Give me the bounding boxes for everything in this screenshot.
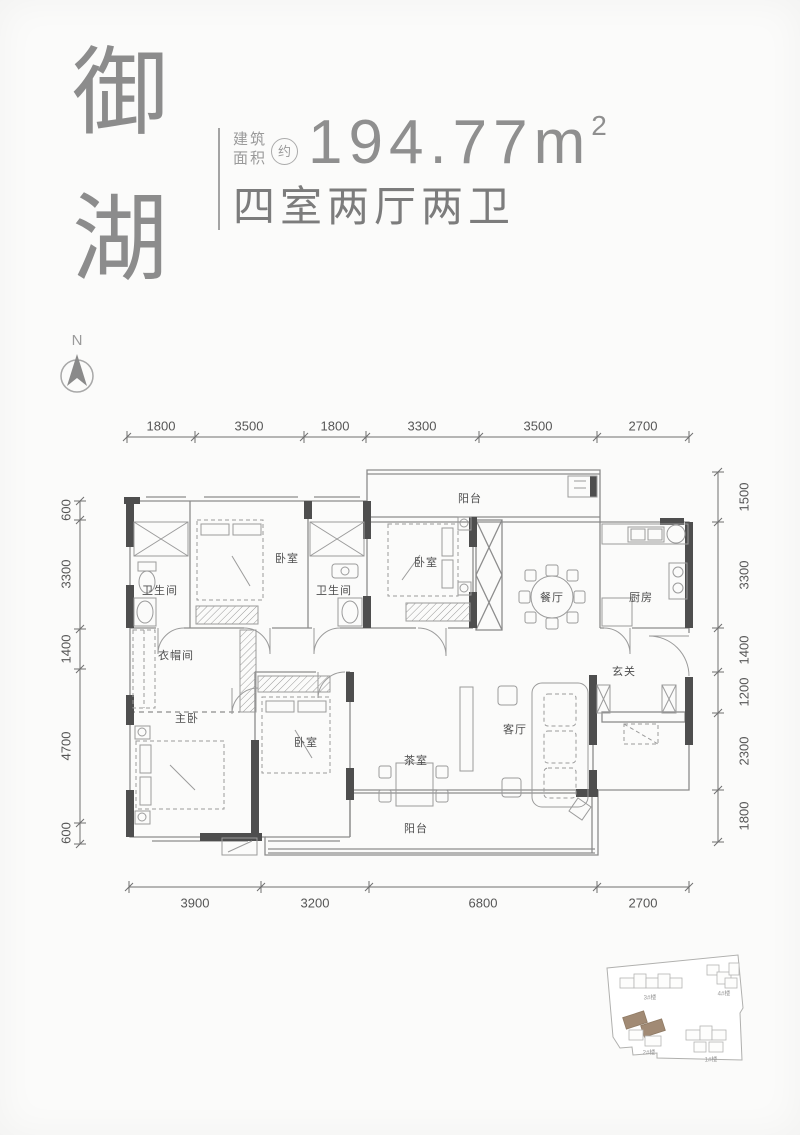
foyer-columns-icon xyxy=(597,685,676,713)
dim-left-1: 3300 xyxy=(59,560,74,589)
dim-top-3: 3300 xyxy=(408,419,437,434)
room-label-cloakroom: 衣帽间 xyxy=(158,647,194,663)
dim-top-4: 3500 xyxy=(524,419,553,434)
sofa-icon xyxy=(498,683,591,820)
foyer-box-icon xyxy=(624,724,658,744)
room-label-bathroom-2: 卫生间 xyxy=(316,582,352,598)
shower-2-icon xyxy=(310,522,364,556)
dim-left-2: 1400 xyxy=(59,635,74,664)
room-label-bathroom-1: 卫生间 xyxy=(142,582,178,598)
wardrobe-2-icon xyxy=(406,603,470,621)
site-building-label-2: 2#楼 xyxy=(643,1048,656,1057)
dim-bottom-3: 2700 xyxy=(629,896,658,911)
tv-cabinet-icon xyxy=(460,687,473,771)
site-building-label-3: 3#楼 xyxy=(644,993,657,1002)
dim-bottom-2: 6800 xyxy=(469,896,498,911)
furniture xyxy=(133,476,688,855)
walls-dark xyxy=(124,476,693,841)
dim-right-4: 2300 xyxy=(737,737,752,766)
site-building-label-4: 4#楼 xyxy=(718,989,731,998)
shower-1-icon xyxy=(134,522,188,556)
dim-bottom-1: 3200 xyxy=(301,896,330,911)
dim-right-3: 1200 xyxy=(737,678,752,707)
dim-top-1: 3500 xyxy=(235,419,264,434)
room-label-bedroom-2: 卧室 xyxy=(414,554,438,570)
room-label-foyer: 玄关 xyxy=(612,663,636,679)
master-bed-pillows xyxy=(140,745,195,805)
dim-bottom-0: 3900 xyxy=(181,896,210,911)
cloakroom-closet-icon xyxy=(133,630,155,708)
dim-right-1: 3300 xyxy=(737,561,752,590)
floor-plan-graphics xyxy=(0,0,800,1135)
sink-1-icon xyxy=(134,598,156,626)
room-label-tea-room: 茶室 xyxy=(404,752,428,768)
sink-2-icon xyxy=(338,598,362,626)
site-map xyxy=(607,955,743,1060)
room-label-balcony-top: 阳台 xyxy=(458,490,482,506)
room-label-balcony-bottom: 阳台 xyxy=(404,820,428,836)
kitchen-counter-icon xyxy=(602,524,688,626)
compass-icon xyxy=(61,354,93,392)
room-label-kitchen: 厨房 xyxy=(629,589,653,605)
dim-top-0: 1800 xyxy=(147,419,176,434)
wardrobe-1-icon xyxy=(196,606,258,624)
tea-table-icon xyxy=(379,763,448,806)
room-label-bedroom-3: 卧室 xyxy=(294,734,318,750)
wardrobe-3-icon xyxy=(258,676,330,692)
dim-right-2: 1400 xyxy=(737,636,752,665)
dim-top-5: 2700 xyxy=(629,419,658,434)
dim-right-0: 1500 xyxy=(737,483,752,512)
door-arcs xyxy=(158,628,689,714)
bed-1-icon xyxy=(197,520,263,600)
toilet-2-icon xyxy=(332,564,358,578)
dim-top-2: 1800 xyxy=(321,419,350,434)
walls-thin xyxy=(130,470,689,855)
floor-plan-page: 御 湖 建筑 面积 约 194.77m2 四室两厅两卫 N xyxy=(0,0,800,1135)
site-building-label-1: 1#楼 xyxy=(705,1055,718,1064)
bed-1-pillows xyxy=(201,524,261,586)
room-label-bedroom-1: 卧室 xyxy=(275,550,299,566)
room-label-master-bedroom: 主卧 xyxy=(175,710,199,726)
room-label-living: 客厅 xyxy=(503,721,527,737)
dim-left-0: 600 xyxy=(59,499,74,521)
dim-right-5: 1800 xyxy=(737,802,752,831)
dim-left-3: 4700 xyxy=(59,732,74,761)
cloakroom-wardrobe-icon xyxy=(240,630,256,712)
room-label-dining: 餐厅 xyxy=(540,589,564,605)
dim-left-4: 600 xyxy=(59,822,74,844)
